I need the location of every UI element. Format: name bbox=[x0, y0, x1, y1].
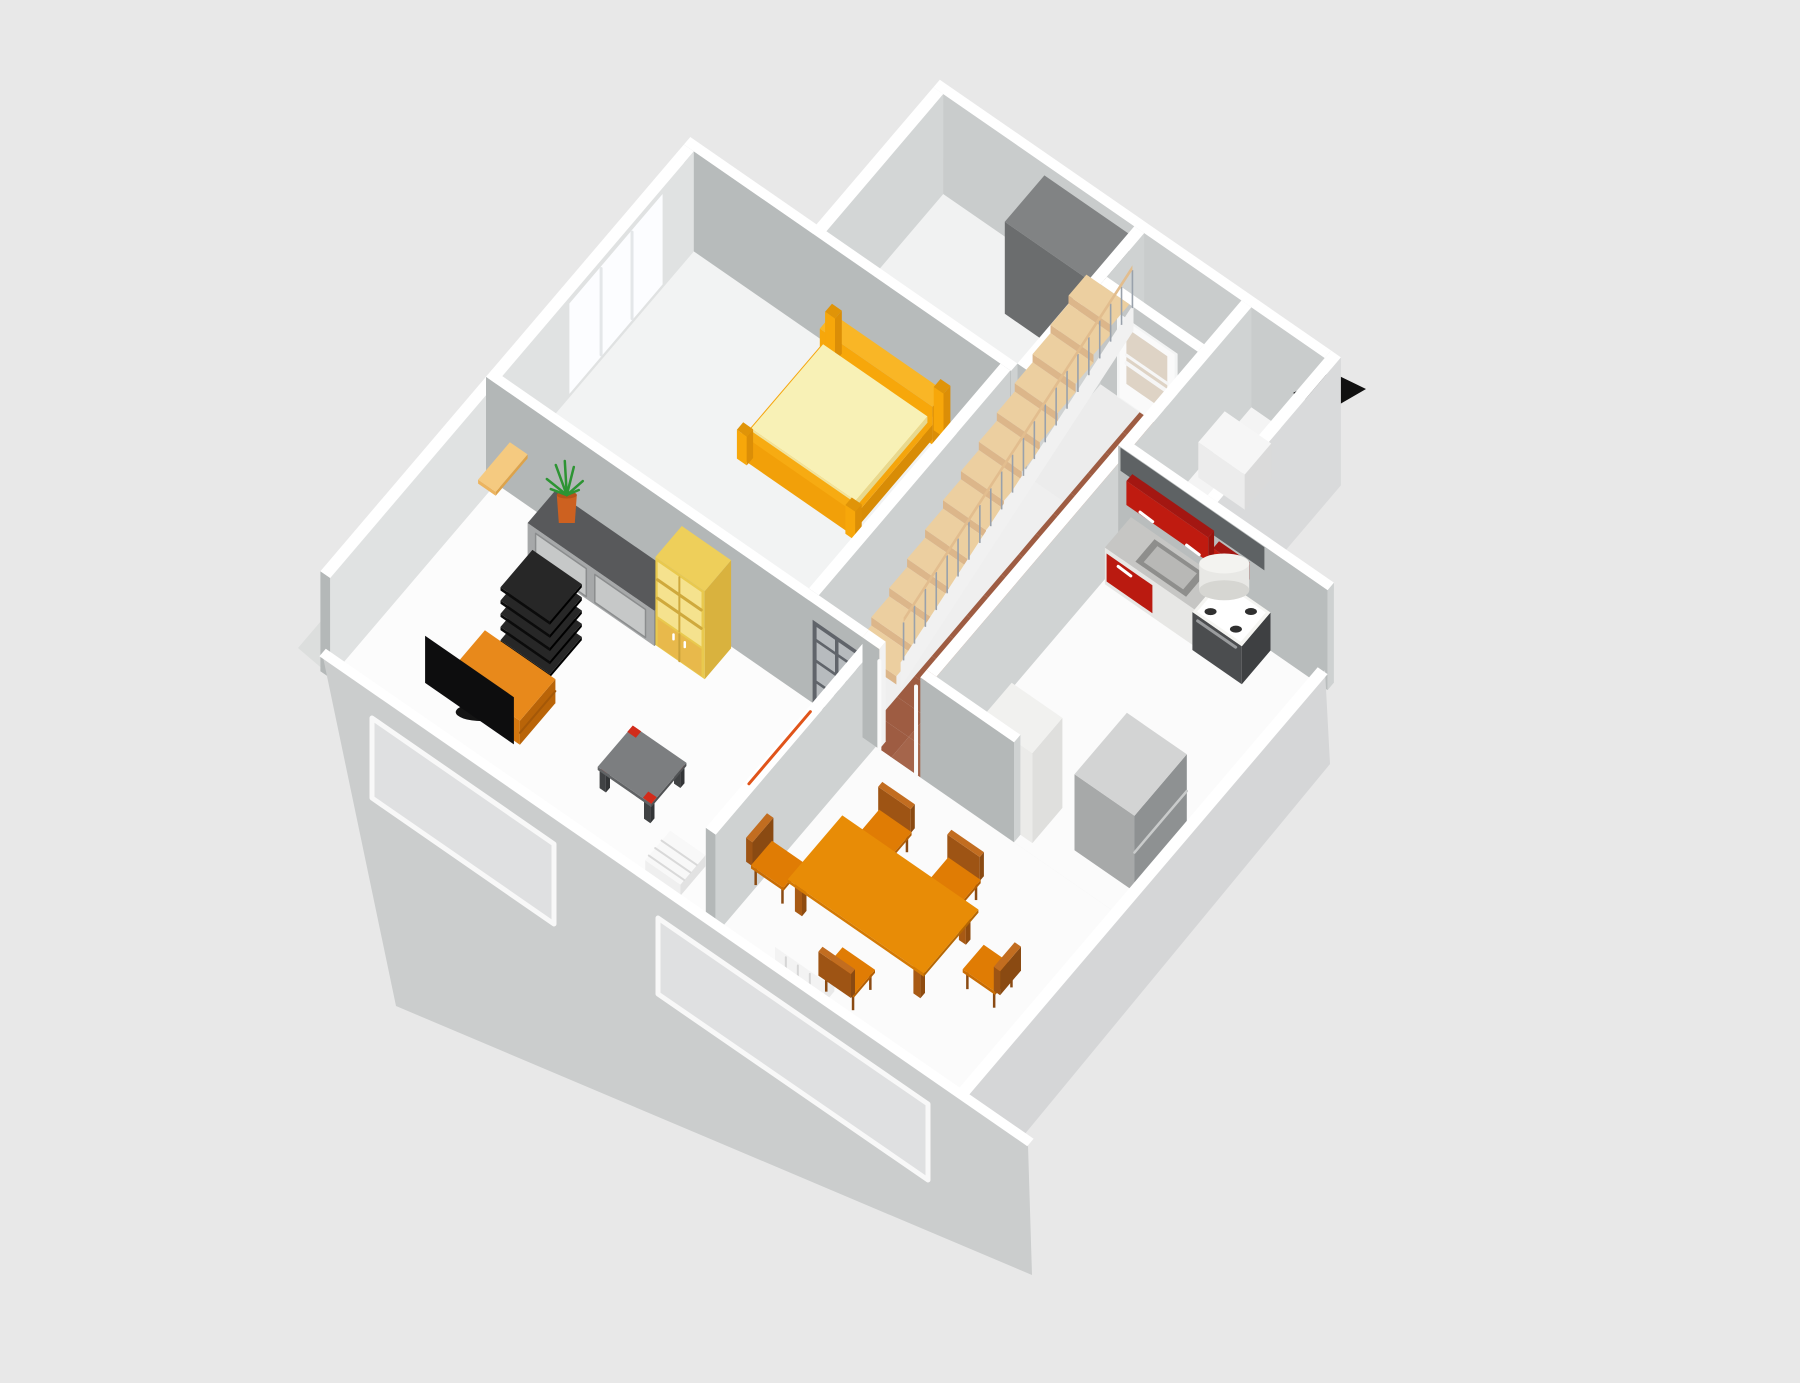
stove-burner-4 bbox=[1245, 608, 1257, 615]
floor-plan-3d-view[interactable] bbox=[40, 16, 1800, 1367]
stove-burner-1 bbox=[1205, 608, 1217, 615]
bed-post-foot-left bbox=[737, 422, 753, 465]
stove-burner-3 bbox=[1230, 626, 1242, 633]
house-3d-render[interactable] bbox=[40, 16, 1800, 1367]
extractor-hood[interactable] bbox=[1199, 553, 1249, 600]
dining-door-jamb bbox=[863, 630, 886, 749]
